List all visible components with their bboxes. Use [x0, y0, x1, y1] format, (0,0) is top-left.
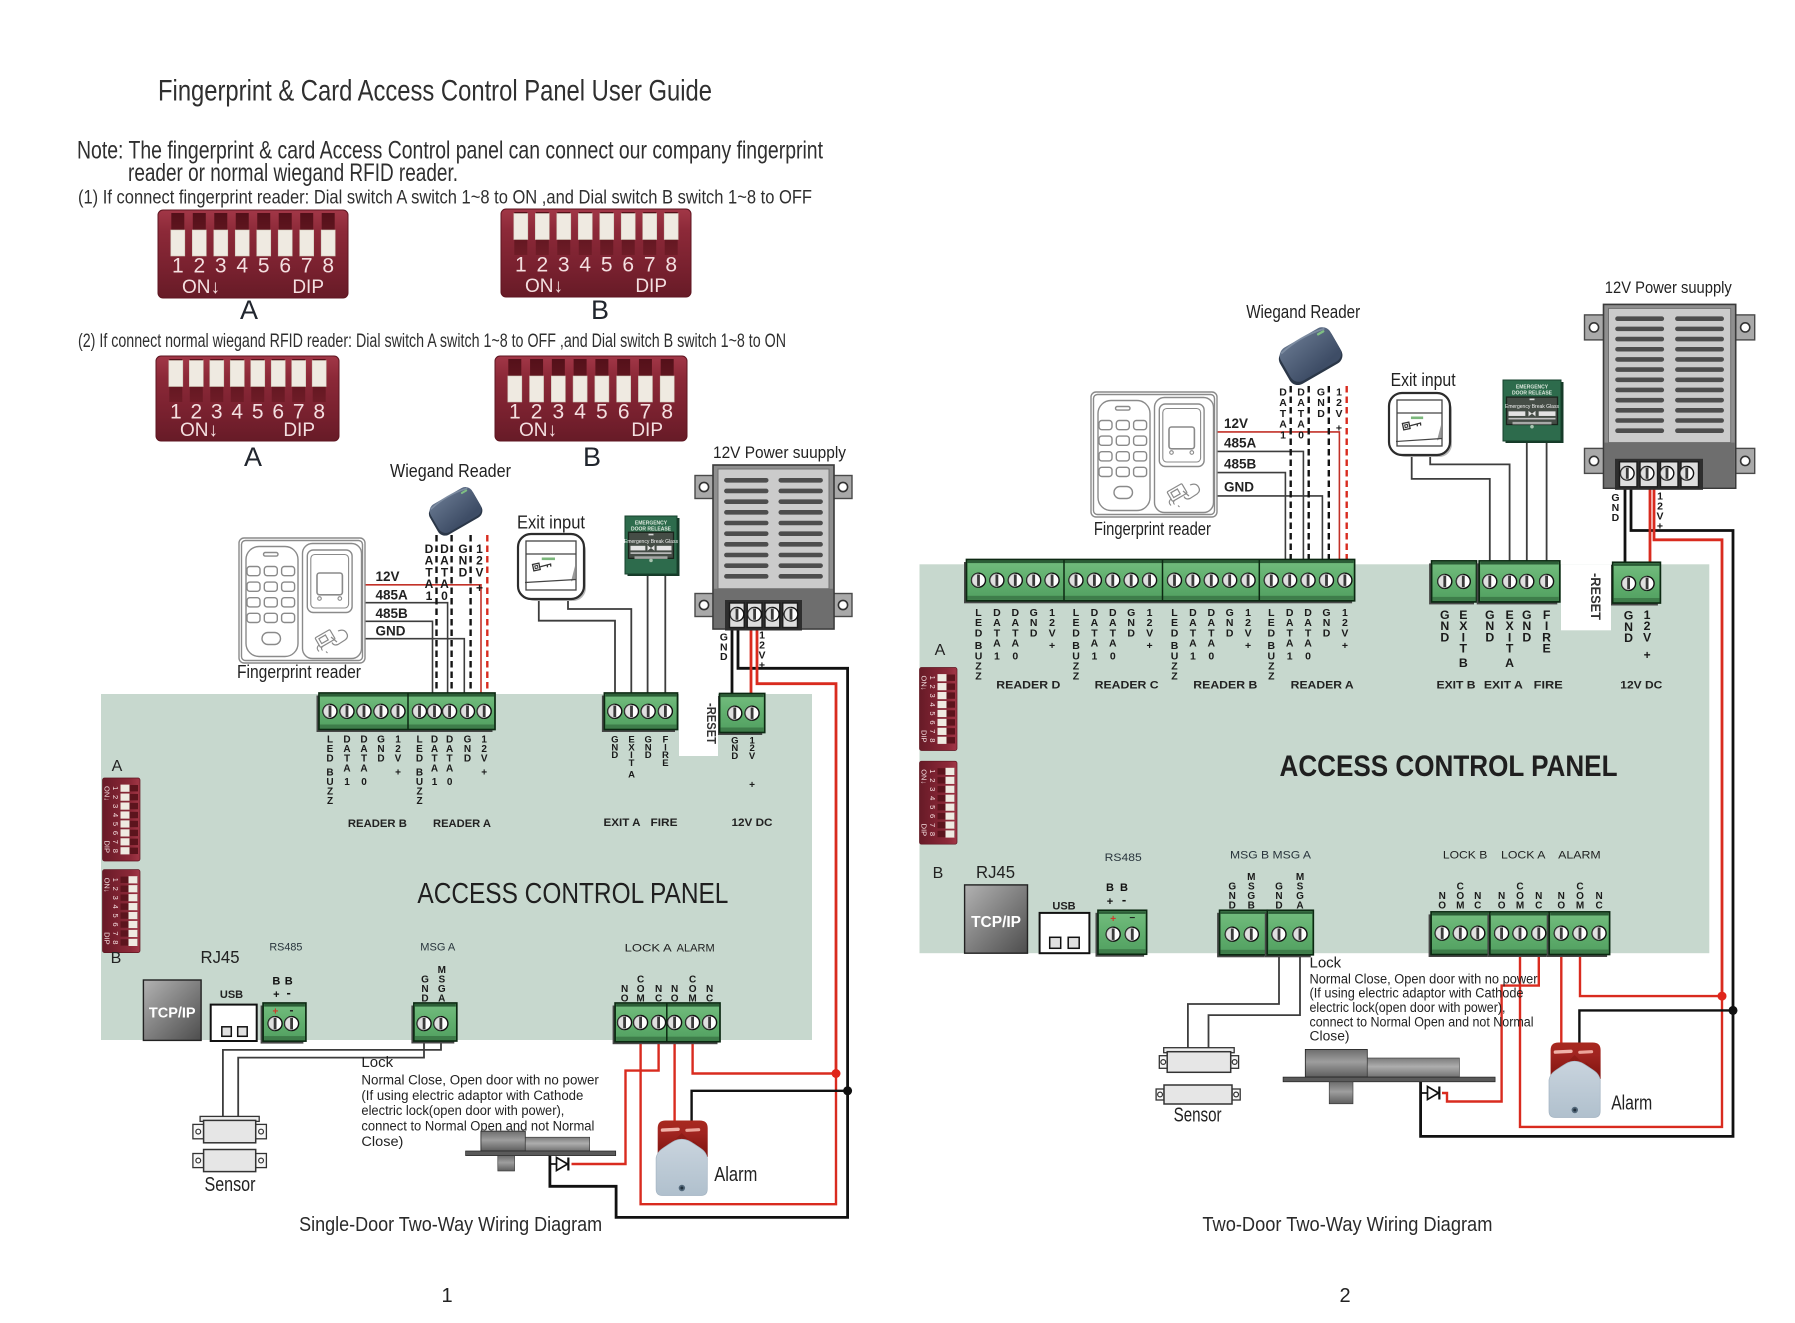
svg-text:NC: NC: [706, 984, 713, 1005]
svg-text:4: 4: [111, 813, 120, 817]
svg-text:DIP: DIP: [102, 932, 111, 945]
svg-text:2: 2: [111, 887, 120, 891]
svg-text:1: 1: [172, 255, 184, 278]
svg-text:12V+: 12V+: [395, 735, 402, 779]
svg-text:1: 1: [111, 878, 120, 882]
svg-text:B: B: [272, 976, 280, 988]
svg-text:7: 7: [928, 823, 937, 827]
svg-text:GND: GND: [731, 735, 738, 762]
svg-text:B: B: [111, 950, 122, 967]
svg-text:Exit input: Exit input: [1391, 370, 1456, 390]
svg-text:1: 1: [928, 676, 937, 680]
svg-text:NO: NO: [1557, 891, 1565, 912]
svg-text:USB: USB: [220, 989, 243, 1001]
svg-text:Lock: Lock: [361, 1054, 393, 1071]
svg-text:2: 2: [928, 778, 937, 782]
svg-text:DATA1: DATA1: [425, 542, 434, 603]
svg-text:Emergency Break Glass: Emergency Break Glass: [1505, 404, 1559, 410]
svg-text:B: B: [583, 442, 601, 472]
svg-text:3: 3: [928, 787, 937, 791]
svg-text:RJ45: RJ45: [201, 947, 240, 967]
svg-text:COM: COM: [1576, 882, 1584, 912]
svg-text:4: 4: [928, 702, 937, 706]
svg-text:GND: GND: [611, 735, 618, 762]
svg-text:B: B: [591, 295, 609, 325]
svg-text:3: 3: [558, 254, 570, 277]
svg-text:B: B: [1106, 882, 1114, 894]
svg-text:COM: COM: [1516, 882, 1524, 912]
svg-text:DATA0: DATA0: [440, 542, 449, 603]
svg-text:READER A: READER A: [1291, 680, 1354, 692]
svg-text:4: 4: [236, 255, 248, 278]
svg-text:COM: COM: [636, 975, 644, 1005]
svg-text:Fingerprint reader: Fingerprint reader: [1094, 519, 1211, 539]
svg-text:8: 8: [661, 401, 673, 424]
svg-text:DIP: DIP: [919, 730, 928, 743]
svg-text:Lock: Lock: [1310, 955, 1342, 972]
svg-text:GND: GND: [1030, 607, 1038, 639]
svg-text:LEDBUZZ: LEDBUZZ: [1072, 607, 1080, 683]
svg-text:Fingerprint reader: Fingerprint reader: [237, 662, 361, 682]
svg-text:2: 2: [536, 254, 548, 277]
svg-text:GND: GND: [1440, 608, 1450, 644]
svg-text:3: 3: [111, 896, 120, 900]
svg-text:NO: NO: [1498, 891, 1506, 912]
svg-text:485B: 485B: [376, 606, 409, 621]
svg-text:1: 1: [441, 1285, 452, 1307]
svg-text:RS485: RS485: [1105, 852, 1142, 864]
svg-text:(1) If connect fingerprint rea: (1) If connect fingerprint reader: Dial …: [78, 188, 812, 209]
svg-text:DIP: DIP: [631, 420, 663, 441]
svg-text:NC: NC: [1474, 891, 1481, 912]
svg-text:5: 5: [928, 805, 937, 809]
svg-text:NC: NC: [655, 984, 662, 1005]
svg-text:RJ45: RJ45: [976, 862, 1015, 882]
svg-text:DIP: DIP: [283, 420, 315, 441]
svg-text:12V+: 12V+: [758, 630, 765, 672]
svg-text:12V+: 12V+: [1341, 607, 1348, 652]
svg-text:ON↓: ON↓: [180, 420, 218, 441]
svg-text:(2) If connect normal wiegand: (2) If connect normal wiegand RFID reade…: [78, 331, 786, 352]
svg-text:ON↓: ON↓: [919, 676, 928, 691]
svg-text:TCP/IP: TCP/IP: [971, 914, 1021, 931]
svg-text:12V: 12V: [376, 569, 400, 584]
svg-text:DATA1: DATA1: [431, 735, 438, 788]
svg-text:NC: NC: [1535, 891, 1542, 912]
svg-text:4: 4: [231, 401, 243, 424]
svg-text:ALARM: ALARM: [1558, 850, 1601, 862]
svg-text:485A: 485A: [1224, 436, 1257, 451]
svg-text:DIP: DIP: [635, 276, 667, 297]
svg-text:GND: GND: [1317, 387, 1325, 420]
svg-text:A: A: [240, 295, 258, 325]
svg-text:8: 8: [111, 849, 120, 853]
svg-text:Alarm: Alarm: [1611, 1093, 1652, 1115]
svg-text:7: 7: [111, 931, 120, 935]
svg-text:5: 5: [928, 711, 937, 715]
svg-text:12V+: 12V+: [475, 542, 483, 595]
svg-text:TCP/IP: TCP/IP: [149, 1005, 196, 1021]
svg-text:6: 6: [928, 720, 937, 724]
svg-text:+: +: [1107, 896, 1113, 908]
svg-text:3: 3: [215, 255, 227, 278]
svg-text:8: 8: [322, 255, 334, 278]
svg-text:1: 1: [515, 254, 527, 277]
svg-text:6: 6: [272, 401, 284, 424]
svg-text:RS485: RS485: [269, 942, 302, 954]
svg-text:GND: GND: [1275, 882, 1283, 912]
svg-text:8: 8: [928, 738, 937, 742]
svg-text:GND: GND: [1611, 492, 1619, 524]
svg-text:485B: 485B: [1224, 457, 1257, 472]
svg-text:LEDBUZZ: LEDBUZZ: [1268, 607, 1276, 683]
svg-text:GND: GND: [720, 631, 728, 663]
svg-text:DATA0: DATA0: [446, 735, 453, 788]
svg-text:connect to Normal Open and not: connect to Normal Open and not Normal: [1310, 1014, 1534, 1029]
svg-text:DIP: DIP: [919, 824, 928, 837]
svg-text:A: A: [935, 642, 946, 659]
svg-text:LEDBUZZ: LEDBUZZ: [416, 735, 423, 808]
svg-text:8: 8: [928, 832, 937, 836]
svg-text:+: +: [273, 989, 279, 1001]
svg-text:LOCK A: LOCK A: [1501, 850, 1546, 862]
svg-text:DATA1: DATA1: [343, 735, 350, 788]
svg-text:5: 5: [252, 401, 264, 424]
svg-text:ON↓: ON↓: [519, 420, 557, 441]
svg-text:DOOR RELEASE: DOOR RELEASE: [1512, 391, 1553, 397]
svg-text:Wiegand Reader: Wiegand Reader: [390, 461, 511, 481]
svg-text:GND: GND: [377, 735, 385, 765]
svg-text:ON↓: ON↓: [182, 277, 220, 298]
svg-text:GND: GND: [1485, 608, 1495, 644]
svg-text:ON↓: ON↓: [102, 786, 111, 801]
svg-text:GND: GND: [1322, 607, 1330, 639]
svg-text:12V DC: 12V DC: [732, 817, 773, 829]
svg-text:GND: GND: [645, 735, 652, 762]
svg-text:3: 3: [928, 693, 937, 697]
svg-text:485A: 485A: [376, 588, 409, 603]
svg-text:READER D: READER D: [996, 680, 1060, 692]
svg-text:electric lock(open door with p: electric lock(open door with power),: [1310, 1000, 1506, 1015]
svg-text:NC: NC: [1595, 891, 1602, 912]
svg-text:LEDBUZZ: LEDBUZZ: [1171, 607, 1179, 683]
svg-text:4: 4: [111, 905, 120, 909]
svg-text:LEDBUZZ: LEDBUZZ: [326, 735, 333, 808]
svg-text:12V: 12V: [1224, 416, 1248, 431]
svg-text:LOCK A: LOCK A: [625, 943, 673, 955]
svg-text:4: 4: [574, 401, 586, 424]
svg-text:MSGB: MSGB: [1247, 872, 1255, 912]
svg-text:READER B: READER B: [1193, 680, 1257, 692]
svg-text:GND: GND: [1522, 608, 1532, 644]
svg-text:reader or normal wiegand RFID: reader or normal wiegand RFID reader.: [128, 159, 458, 187]
svg-text:3: 3: [111, 804, 120, 808]
svg-text:ACCESS CONTROL PANEL: ACCESS CONTROL PANEL: [1280, 750, 1618, 783]
svg-text:2: 2: [111, 795, 120, 799]
svg-text:GND: GND: [1228, 882, 1236, 912]
svg-text:EXIT B: EXIT B: [1437, 680, 1476, 692]
svg-text:Wiegand Reader: Wiegand Reader: [1246, 302, 1360, 322]
svg-text:GND: GND: [464, 735, 472, 765]
svg-text:GND: GND: [1226, 607, 1234, 639]
svg-text:Single-Door Two-Way Wiring Dia: Single-Door Two-Way Wiring Diagram: [299, 1214, 602, 1236]
svg-text:ON↓: ON↓: [525, 276, 563, 297]
svg-text:LEDBUZZ: LEDBUZZ: [975, 607, 983, 683]
svg-text:12V+: 12V+: [1245, 607, 1252, 652]
svg-text:NO: NO: [671, 984, 679, 1005]
svg-text:1: 1: [928, 769, 937, 773]
svg-text:Sensor: Sensor: [1174, 1105, 1222, 1127]
svg-text:READER C: READER C: [1095, 680, 1159, 692]
svg-text:GND: GND: [1127, 607, 1135, 639]
svg-text:8: 8: [313, 401, 325, 424]
svg-text:ON↓: ON↓: [919, 769, 928, 784]
svg-text:5: 5: [258, 255, 270, 278]
svg-text:FIRE: FIRE: [651, 817, 678, 829]
svg-text:2: 2: [193, 255, 205, 278]
svg-text:7: 7: [928, 729, 937, 733]
svg-text:Emergency Break Glass: Emergency Break Glass: [624, 539, 678, 545]
svg-text:FIRE: FIRE: [1542, 608, 1551, 656]
svg-text:EXIT A: EXIT A: [604, 817, 641, 829]
svg-text:6: 6: [111, 831, 120, 835]
svg-text:-: -: [287, 985, 291, 1000]
svg-text:Normal Close, Open door with n: Normal Close, Open door with no power: [1310, 971, 1538, 986]
svg-text:+: +: [749, 780, 755, 791]
svg-text:7: 7: [301, 255, 313, 278]
svg-text:−: −: [1129, 913, 1135, 924]
svg-text:6: 6: [622, 254, 634, 277]
svg-text:Exit input: Exit input: [517, 513, 585, 533]
svg-text:DIP: DIP: [102, 840, 111, 853]
svg-text:connect to Normal Open and not: connect to Normal Open and not Normal: [361, 1118, 594, 1133]
svg-text:Normal Close, Open door with n: Normal Close, Open door with no power: [361, 1073, 599, 1088]
svg-text:Fingerprint & Card Access Cont: Fingerprint & Card Access Control Panel …: [158, 75, 712, 108]
svg-text:COM: COM: [1456, 882, 1464, 912]
svg-text:A: A: [244, 442, 262, 472]
svg-text:5: 5: [601, 254, 613, 277]
svg-text:MSGA: MSGA: [1296, 872, 1304, 912]
svg-text:-: -: [290, 1003, 294, 1017]
svg-text:ON↓: ON↓: [102, 878, 111, 893]
svg-text:6: 6: [111, 922, 120, 926]
svg-text:NO: NO: [621, 984, 629, 1005]
svg-text:Sensor: Sensor: [205, 1174, 256, 1196]
svg-text:5: 5: [111, 913, 120, 917]
svg-text:DIP: DIP: [292, 277, 324, 298]
svg-text:USB: USB: [1052, 901, 1075, 913]
svg-text:-RESET: -RESET: [1588, 573, 1603, 621]
svg-text:6: 6: [618, 401, 630, 424]
svg-text:-RESET: -RESET: [704, 703, 718, 744]
svg-text:electric lock(open door with p: electric lock(open door with power),: [361, 1103, 564, 1118]
svg-text:7: 7: [111, 840, 120, 844]
svg-text:+: +: [272, 1007, 278, 1018]
svg-text:LOCK B: LOCK B: [1443, 850, 1487, 862]
svg-text:(If using electric adaptor wit: (If using electric adaptor with Cathode: [361, 1088, 583, 1103]
svg-text:1: 1: [111, 786, 120, 790]
svg-text:Two-Door Two-Way Wiring Diagra: Two-Door Two-Way Wiring Diagram: [1202, 1214, 1492, 1236]
svg-text:Alarm: Alarm: [714, 1164, 757, 1186]
svg-text:ALARM: ALARM: [677, 943, 715, 955]
svg-text:+: +: [1644, 648, 1651, 662]
svg-text:5: 5: [596, 401, 608, 424]
svg-text:ACCESS CONTROL PANEL: ACCESS CONTROL PANEL: [417, 878, 728, 910]
svg-text:READER B: READER B: [348, 818, 407, 830]
svg-text:A: A: [112, 758, 123, 775]
svg-text:2: 2: [928, 685, 937, 689]
svg-text:FIRE: FIRE: [1534, 680, 1563, 692]
svg-text:12V+: 12V+: [1335, 387, 1342, 435]
svg-text:2: 2: [1339, 1285, 1350, 1307]
svg-text:GND: GND: [1224, 480, 1254, 495]
svg-text:-: -: [1122, 892, 1126, 907]
svg-text:12V+: 12V+: [1146, 607, 1153, 652]
svg-text:READER A: READER A: [433, 818, 491, 830]
svg-text:12V DC: 12V DC: [1620, 680, 1662, 692]
svg-text:+: +: [1110, 914, 1116, 925]
svg-text:MSGA: MSGA: [438, 965, 446, 1005]
svg-text:4: 4: [579, 254, 591, 277]
svg-text:MSG A: MSG A: [420, 942, 456, 954]
svg-text:EXITA: EXITA: [628, 735, 635, 781]
svg-text:4: 4: [928, 796, 937, 800]
svg-text:12V+: 12V+: [481, 735, 488, 779]
svg-text:GND: GND: [421, 975, 429, 1005]
svg-text:12V+: 12V+: [1656, 491, 1663, 533]
svg-text:7: 7: [644, 254, 656, 277]
svg-text:GND: GND: [458, 542, 467, 579]
svg-text:12V Power suupply: 12V Power suupply: [1605, 278, 1732, 297]
svg-text:6: 6: [279, 255, 291, 278]
svg-text:Close): Close): [1310, 1029, 1350, 1044]
svg-text:EXIT A: EXIT A: [1484, 680, 1523, 692]
svg-text:6: 6: [928, 814, 937, 818]
svg-text:8: 8: [111, 940, 120, 944]
svg-text:B: B: [933, 865, 944, 882]
svg-text:12V+: 12V+: [1049, 607, 1056, 652]
svg-text:GND: GND: [376, 624, 406, 639]
svg-text:COM: COM: [688, 975, 696, 1005]
svg-text:12V Power suupply: 12V Power suupply: [713, 443, 846, 462]
svg-text:5: 5: [111, 822, 120, 826]
svg-text:DATA0: DATA0: [360, 735, 367, 788]
svg-text:NO: NO: [1438, 891, 1446, 912]
svg-text:8: 8: [665, 254, 677, 277]
svg-text:Close): Close): [361, 1134, 403, 1149]
svg-text:FIRE: FIRE: [662, 735, 669, 769]
svg-text:MSG B MSG A: MSG B MSG A: [1230, 850, 1312, 862]
svg-text:(If using electric adaptor wit: (If using electric adaptor with Cathode: [1310, 986, 1524, 1001]
svg-text:GND: GND: [1624, 609, 1634, 645]
